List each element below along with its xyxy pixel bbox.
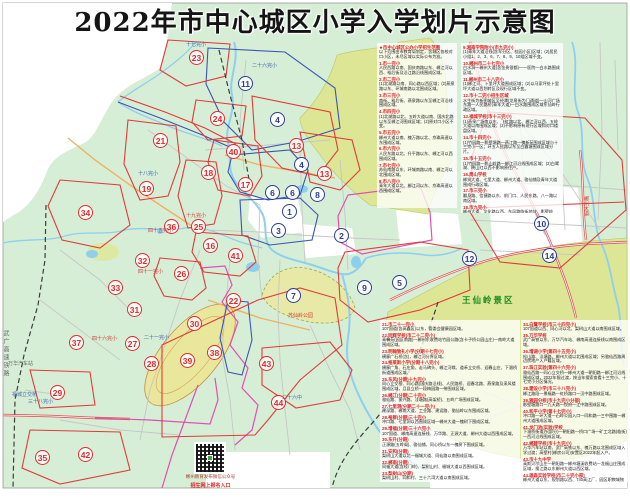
- zone-entry-body: (1)竹园路—影壁塘路—燕江路—槐新苑围成区域与十三完小一区；环五人民路以东至白…: [463, 141, 561, 156]
- zone-marker-16: 16: [203, 238, 218, 253]
- zone-entry-body: 横廊广石桥(含)，郴江河分界区域。: [382, 355, 518, 360]
- zone-marker-24: 24: [210, 111, 225, 126]
- zone-entry-body: 骆仙西路—同心立交桥—郴州大道—朝阳路—郴江河沿线围成区域，2022年限过渡，按…: [523, 371, 627, 386]
- railway-label: 武广高速铁路: [1, 330, 10, 378]
- zone-marker-26: 26: [174, 266, 189, 281]
- zone-entry-body: 横廊广角、石庄角、走马碑头、郴江河缘、道禾立交桥、迎春山庄、下湄桥街道围成区域。: [382, 366, 518, 376]
- zone-entry-body: 人民西路以南、国庆南路以东、郴江河以西、裕后街及沿江路沿线围成区域。: [379, 66, 455, 76]
- zone-entry-body: (1)青年大道沿线(含军分区、桂园小区)区域；(2)居民小组1、2、3、6、7、…: [463, 50, 561, 60]
- zone-entry-body: 郴贤大道、七里大道、郴州大道、骆仙铺及青年大道围成行政区域。: [463, 178, 561, 188]
- zone-marker-19: 19: [139, 181, 154, 196]
- zone-marker-9: 9: [357, 280, 372, 295]
- page-title: 2022年市中心城区小学入学划片示意图: [0, 2, 630, 39]
- zone-list-top-left: ★市中心城区公办小学招生范围以下范围由市教育局划定，含城区各校对口小区，未尽区域…: [377, 43, 457, 208]
- zone-marker-31: 31: [127, 302, 142, 317]
- zone-entry-body: 苏仙南路以东、环城南路以南、郴江河以北围成区域。: [379, 168, 455, 178]
- zone-entry-body: (1)北湖路以北、五岭大道以南、国庆北路以东至郴江河围成区域；(2)原对口小区不…: [379, 115, 455, 130]
- zone-marker-43: 43: [259, 356, 274, 371]
- zone-entry-body: 107国道(含高鑫区)以东，管委会健康园区域。: [382, 327, 518, 332]
- zone-marker-21: 21: [153, 133, 168, 148]
- map-label: 苏仙岭公园: [288, 314, 313, 319]
- qr-entry-label: 招生网上报名入口: [168, 482, 253, 489]
- zone-marker-39: 39: [180, 353, 195, 368]
- map-label: 十九完小: [186, 214, 206, 219]
- zone-entry-body: 翻身路、信捷路以东、前门口、人民东路、八一路以南区域。: [463, 194, 561, 204]
- zone-marker-13: 13: [289, 138, 304, 153]
- zone-entry-body: 高斯贝尔山庄—朝阳路—郴州塘溪收费站—龙福山庄围成区域，搜江路以东郴州大道以西区…: [523, 462, 627, 472]
- zone-list-bottom-left: 21.市二十一完小107国道(含高鑫区)以东，管委会健康园区域。22.同辉学校(…: [380, 320, 520, 482]
- zone-entry-body: 骆仙路、振兴路、洼塘路(高架桥)、五岭广场围成区域。: [382, 398, 518, 403]
- map-label: 福城立交桥: [12, 393, 37, 398]
- zone-marker-22: 22: [226, 293, 241, 308]
- zone-marker-5: 5: [392, 275, 407, 290]
- map-label: 万华汽车站: [8, 362, 33, 367]
- map-label: 二十一完小: [144, 336, 169, 341]
- map-label: 四十一完小: [138, 270, 163, 275]
- qr-code: [196, 444, 224, 472]
- zone-marker-28: 28: [144, 356, 159, 371]
- zone-marker-38: 38: [207, 345, 222, 360]
- zone-entry-body: 以下范围由市教育局划定，含城区各校对口小区，未尽区域以实际公布为准。: [379, 50, 455, 60]
- map-page: 2022年市中心城区小学入学划片示意图 王仙岭景区 武广高速铁路 1234456…: [0, 0, 630, 504]
- zone-marker-30: 30: [187, 316, 202, 331]
- zone-marker-11: 11: [238, 76, 253, 91]
- zone-marker-12: 12: [462, 251, 477, 266]
- zone-marker-10: 10: [534, 216, 549, 231]
- zone-entry-body: 冲口路、七里洞以西围成区域—郴州大道—槐树下围成区域。: [382, 420, 518, 425]
- map-label: 四十六完小: [92, 337, 117, 342]
- zone-entry-body: 建深路、郴南大道、工业路、建设路、骆仙岭以东围成区域。: [382, 409, 518, 414]
- zone-entry-body: 正源路(五岭阁)、骆仙铺、同心桥以东—槐树下围成区域。: [382, 443, 518, 448]
- zone-marker-42: 42: [78, 447, 93, 462]
- zone-entry-body: 松山路、洼塘路、郴州大道以北围成区域；另骆仙西路周边房地产入户籍区域。: [523, 355, 627, 365]
- scenic-area-label: 王仙岭景区: [462, 294, 515, 306]
- zone-entry-body: (1)郴江河、卜里坪大道围成区域；(2)以马家坪处卜里坪大道以西划转区及现行区域…: [463, 82, 561, 92]
- zone-entry-body: 郴州大道、文化路以西、东风路临街地块、影壁岭路、人民西路围成区域。: [463, 210, 561, 213]
- zone-marker-40: 40: [226, 144, 241, 159]
- zone-marker-6: 6: [265, 185, 280, 200]
- zone-entry-body: 同福大道(含桂门岭)、梨树山村、福城大道以西围成区域。: [382, 465, 518, 470]
- zone-marker-14: 14: [542, 248, 557, 263]
- map-label: 三十八完小: [28, 400, 53, 405]
- zone-entry-body: 郴江路段—景福路—虹桥路口—汉中路围成区域。: [523, 392, 627, 397]
- zone-marker-4: 4: [294, 157, 309, 172]
- zone-marker-1: 1: [282, 204, 297, 219]
- zone-marker-2: 2: [334, 228, 349, 243]
- qr-logo: [207, 455, 213, 461]
- zone-entry-body: (1)竹园路—影山岭路—郴江河沿线围成区域；(2)白鹭湖、映山红以西不影响原住户…: [463, 162, 561, 172]
- zone-marker-29: 29: [50, 385, 65, 400]
- zone-entry-body: 青年大道以北、郴江河以东、京珠高速以西围成区域。: [379, 184, 455, 194]
- zone-marker-34: 34: [78, 205, 93, 220]
- zone-marker-27: 27: [125, 336, 140, 351]
- map-label: 十八完小: [138, 172, 158, 177]
- zone-list-top-right: 9.湘南学院附小(市九完小)(1)青年大道沿线(含军分区、桂园小区)区域；(2)…: [461, 43, 563, 213]
- zone-entry-body: 青馨苑(园区南路)—郴州东收费站竹园公路(含卡子桥公园山庄)—南岭大道围成区域。: [382, 338, 518, 348]
- zone-entry-body: 白水洞—郴州大道(含金贵银都)—一医院—白水路围成区域。: [463, 66, 561, 76]
- zone-entry-body: 下湄桥街道办(部分)—朝阳路—桥口广场—矿工北路(临街)—西河沿线围成区域。: [523, 430, 627, 440]
- zone-marker-23: 23: [189, 50, 204, 65]
- zone-entry-body: 冲口路—环大道—石岭公园入口—同和路—三中围路—郴州大道围成区域。: [523, 414, 627, 424]
- qr-caption: 郴州教育发布微信公众号: [168, 474, 253, 480]
- zone-marker-41: 41: [228, 248, 243, 263]
- zone-entry-body: 武广高铁以东、万华汽车站、郴南高速连接线以南围成区域。: [523, 338, 627, 348]
- zone-entry-body: (1)燕泉广场南以东、飞虹路以北、郴江河以西、五岭大道以南围成区域；(2)不影响…: [463, 120, 561, 135]
- zone-marker-18: 18: [201, 165, 216, 180]
- map-label: 四十五完小: [148, 229, 173, 234]
- zone-entry-body: 梨树山村、同和村、三十六湾大道以南围成区域。: [382, 476, 518, 481]
- zone-entry-body: 人民东路以北、升平路以东、郴江河以西围成区域。: [379, 152, 455, 162]
- zone-entry-body: 郴州大道以东、规划路以西、740高江厂、园区职教城物流园围成区域。: [523, 478, 627, 482]
- zone-marker-33: 33: [108, 280, 123, 295]
- zone-entry-body: 梨树山大道以北—福城大道、同仙路以南围成区域。: [382, 454, 518, 459]
- zone-marker-17: 17: [238, 177, 253, 192]
- zone-marker-37: 37: [69, 335, 84, 350]
- zone-marker-13: 13: [317, 166, 332, 181]
- map-label: 二十六完小: [252, 64, 277, 69]
- zone-entry-body: 万华汽车站以南、武广高铁以东、槐万路以北围成区域入学过渡；高壁村(郴房公司)安置…: [523, 446, 627, 456]
- zone-marker-7: 7: [286, 288, 301, 303]
- zone-marker-35: 35: [35, 450, 50, 465]
- zone-entry-body: 同心立交桥、同心路(国庆路沿线)、人民路桥、迎春北路、燕泉路及采风楼围成区域，且…: [382, 382, 518, 392]
- zone-entry-body: (1)北湖路以南、同心路以西区域；(2)燕泉路以东、环城南路以北围成区域。: [379, 82, 455, 92]
- zone-marker-4: 4: [270, 112, 285, 127]
- zone-entry-body: 南街、裕后街、燕泉路以东至郴江河沿线围成区域。: [379, 99, 455, 109]
- zone-list-bottom-right: 34.白鹭学校(市三十四完小)107国道以西、同心河以北、梨树山大道以南围成区域…: [521, 320, 629, 482]
- zone-entry-body: 影壁塘路口—九天路—悦府—江中路围成区域。: [523, 403, 627, 408]
- zone-marker-3: 3: [271, 223, 286, 238]
- zone-entry-body: 107国道以西、同心河以北、梨树山大道以南围成区域。: [523, 327, 627, 332]
- zone-entry-body: 郴州大道以南、槐万路以北、京珠高速以东围成区域。: [379, 136, 455, 146]
- zone-marker-8: 8: [310, 187, 325, 202]
- zone-marker-6: 6: [285, 185, 300, 200]
- zone-entry-body: 107国道、郴南高速连接线、万华路、正源大道、郴州大道以西围成区域。: [382, 432, 518, 437]
- map-label: 二十六中: [282, 396, 302, 401]
- map-label: 郴州大道: [583, 196, 588, 216]
- zone-marker-25: 25: [191, 219, 206, 234]
- zone-marker-32: 32: [135, 253, 150, 268]
- map-label: 十七完小: [186, 43, 206, 48]
- zone-entry-body: 水生街为新图城区至经潭(龙泉街为门通道)—山河广场东路—人民路桥(青年大道)—白…: [463, 99, 561, 114]
